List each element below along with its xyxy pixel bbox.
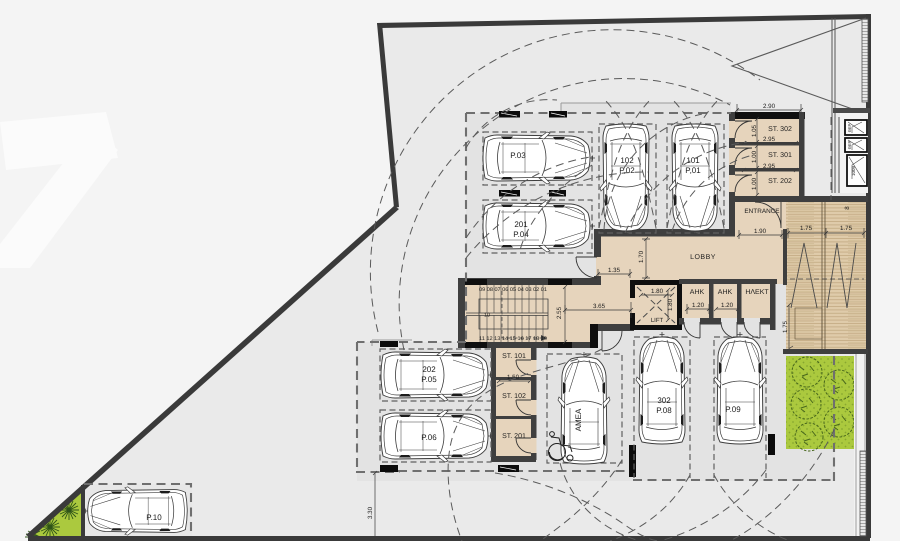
svg-text:10: 10 <box>484 313 490 319</box>
svg-text:1.00: 1.00 <box>751 150 758 163</box>
svg-text:101: 101 <box>686 156 700 165</box>
svg-text:302: 302 <box>657 396 671 405</box>
svg-text:ST. 201: ST. 201 <box>502 433 526 440</box>
svg-text:ΘΕΡ: ΘΕΡ <box>847 123 852 132</box>
svg-text:AHK: AHK <box>690 289 705 296</box>
svg-text:P.06: P.06 <box>421 433 437 442</box>
svg-text:1.50: 1.50 <box>507 374 520 381</box>
svg-text:ΘΕΡ: ΘΕΡ <box>847 140 852 149</box>
svg-text:LIFT: LIFT <box>651 317 664 324</box>
svg-text:1.90: 1.90 <box>754 228 767 235</box>
svg-text:1.35: 1.35 <box>608 267 621 274</box>
svg-text:LOBBY: LOBBY <box>690 254 716 261</box>
svg-text:11 12 13 14 15 16 17 18 19: 11 12 13 14 15 16 17 18 19 <box>479 336 547 342</box>
svg-text:ΗΛΕΚΤ: ΗΛΕΚΤ <box>745 289 769 296</box>
svg-text:3.65: 3.65 <box>593 303 606 310</box>
svg-text:201: 201 <box>514 220 528 229</box>
svg-text:1.75: 1.75 <box>840 225 853 232</box>
svg-text:ST. 202: ST. 202 <box>768 178 792 185</box>
svg-text:2.95: 2.95 <box>763 136 776 143</box>
svg-text:1.80: 1.80 <box>651 288 664 295</box>
svg-text:2.90: 2.90 <box>763 103 776 110</box>
svg-text:AHK: AHK <box>718 289 733 296</box>
svg-text:8: 8 <box>844 206 851 210</box>
svg-text:P.05: P.05 <box>421 375 437 384</box>
svg-text:1.70: 1.70 <box>638 250 645 263</box>
svg-text:1.75: 1.75 <box>800 225 813 232</box>
svg-text:1.05: 1.05 <box>751 124 758 137</box>
svg-text:ENTRANCE: ENTRANCE <box>744 208 779 215</box>
svg-text:P.08: P.08 <box>656 406 672 415</box>
svg-text:P.10: P.10 <box>146 513 162 522</box>
svg-text:1.20: 1.20 <box>721 302 734 309</box>
svg-text:ST. 301: ST. 301 <box>768 152 792 159</box>
svg-text:1.20: 1.20 <box>692 302 705 309</box>
svg-text:P,02: P,02 <box>619 166 635 175</box>
svg-text:AMEA: AMEA <box>574 408 583 431</box>
svg-text:202: 202 <box>422 365 436 374</box>
svg-text:ST. 102: ST. 102 <box>502 393 526 400</box>
svg-text:ST. 101: ST. 101 <box>502 353 526 360</box>
svg-text:1.80: 1.80 <box>667 298 674 311</box>
svg-text:ST. 302: ST. 302 <box>768 126 792 133</box>
svg-text:2.55: 2.55 <box>556 306 563 319</box>
svg-text:P,01: P,01 <box>685 166 701 175</box>
svg-text:P.09: P.09 <box>725 405 741 414</box>
svg-text:2.95: 2.95 <box>763 163 776 170</box>
svg-text:3.30: 3.30 <box>367 506 374 519</box>
svg-text:P.03: P.03 <box>510 151 526 160</box>
svg-text:1009: 1009 <box>851 165 856 176</box>
svg-text:1.00: 1.00 <box>751 177 758 190</box>
svg-text:1.75: 1.75 <box>782 320 789 333</box>
svg-text:09 08 07 06 05 04 03 02 01: 09 08 07 06 05 04 03 02 01 <box>479 287 547 293</box>
